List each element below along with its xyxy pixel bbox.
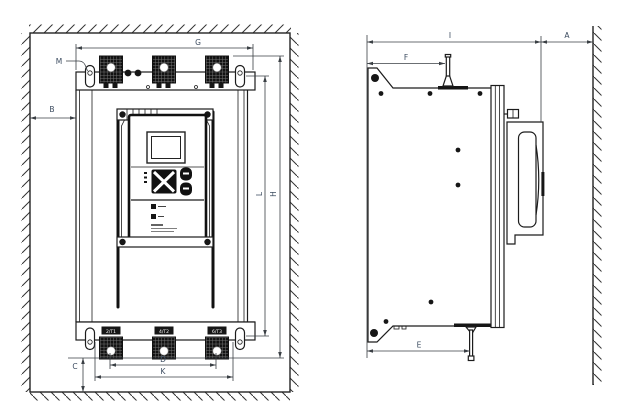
side-wall-hatch xyxy=(593,26,602,385)
mounting-slot-bottom-left xyxy=(86,328,95,350)
terminal-block-bottom-3 xyxy=(206,337,229,359)
terminal-label-3: 6/T3 xyxy=(212,329,222,335)
terminal-label-2: 4/T2 xyxy=(159,329,169,335)
mounting-slot-bottom-right xyxy=(236,328,245,350)
right-wall-hatch xyxy=(290,33,299,392)
dim-label-f: F xyxy=(404,53,408,62)
top-wall-hatch xyxy=(29,25,291,34)
dim-label-i: I xyxy=(449,31,451,40)
status-leds xyxy=(144,172,147,183)
left-panel-accent xyxy=(122,120,125,243)
dim-label-l: L xyxy=(255,191,264,196)
dim-label-d: D xyxy=(160,355,166,364)
mount-bracket xyxy=(504,110,544,245)
terminal-label-1: 2/T1 xyxy=(106,329,116,335)
dim-label-h: H xyxy=(269,191,278,197)
dim-label-k: K xyxy=(161,367,167,376)
starter-side xyxy=(367,35,544,361)
mounting-slot-top-right xyxy=(236,66,245,88)
terminal-block-top-2 xyxy=(153,56,176,88)
drawing-canvas: 2/T1 4/T2 6/T3 xyxy=(0,0,622,418)
starter-front: 2/T1 4/T2 6/T3 xyxy=(76,56,255,359)
floor-hatch xyxy=(30,392,290,401)
keypad-panel xyxy=(117,115,213,247)
lcd-display xyxy=(147,132,185,163)
top-hanger-stud xyxy=(438,55,468,90)
top-screw-1 xyxy=(125,70,132,77)
back-panel-strips xyxy=(491,86,504,328)
terminal-nameplates: 2/T1 4/T2 6/T3 xyxy=(102,327,227,335)
bottom-clamp-bar xyxy=(117,237,213,247)
dim-label-e: E xyxy=(417,341,422,350)
terminal-block-top-3 xyxy=(206,56,229,88)
dim-label-a: A xyxy=(564,31,570,40)
dim-label-b: B xyxy=(49,105,54,114)
nav-keypad xyxy=(152,170,177,194)
dimension-drawing: 2/T1 4/T2 6/T3 xyxy=(0,0,622,418)
terminal-block-top-1 xyxy=(100,56,123,88)
front-view: 2/T1 4/T2 6/T3 xyxy=(22,25,299,401)
terminal-block-bottom-1 xyxy=(100,337,123,359)
bottom-pin xyxy=(394,324,491,361)
dim-label-g: G xyxy=(195,38,201,47)
side-view: I A F E xyxy=(367,26,602,385)
dim-label-c: C xyxy=(72,362,77,371)
side-wall xyxy=(593,26,602,385)
top-screw-2 xyxy=(135,70,142,77)
dim-label-m: M xyxy=(56,57,62,66)
left-wall-hatch xyxy=(22,33,31,392)
